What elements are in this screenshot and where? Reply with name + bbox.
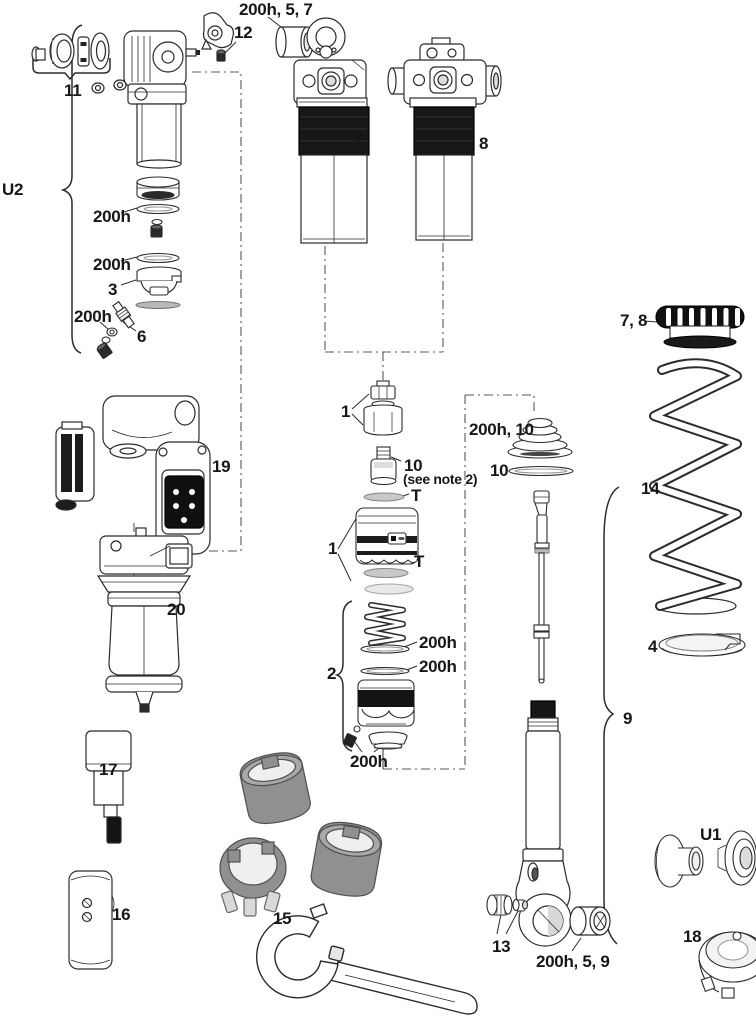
u1-bushings <box>655 831 756 887</box>
exploded-diagram-page: 200h, 5, 71211U2200h200h3200h6787, 81411… <box>0 0 756 1024</box>
part-11-hardware <box>32 33 126 93</box>
reservoir-canister <box>124 31 200 168</box>
part-7-8-preload-ring <box>656 306 744 348</box>
part-8-shock <box>388 38 501 240</box>
brace-9 <box>604 487 619 944</box>
part-4-retainer <box>659 634 745 656</box>
u2-seal-stack <box>96 177 181 359</box>
part-14-coil-spring <box>654 363 737 614</box>
part-20-damper-body <box>98 528 192 712</box>
needle-shaft <box>534 491 549 683</box>
diagram-canvas <box>0 0 756 1024</box>
part-15-wrench <box>257 904 477 1014</box>
part-2-piston-group <box>343 605 414 749</box>
part-1-top-assembly <box>356 381 418 594</box>
part-10-bumper <box>508 419 573 476</box>
part-16-tool <box>69 871 114 969</box>
part-12-lever <box>202 13 233 61</box>
bushing-200h-5-9 <box>570 907 610 935</box>
part-17-tool <box>86 731 131 843</box>
vise-sleeves <box>220 748 384 916</box>
part-19-module <box>56 396 210 554</box>
part-18-cup-tool <box>699 932 756 998</box>
brace-2 <box>337 601 352 751</box>
